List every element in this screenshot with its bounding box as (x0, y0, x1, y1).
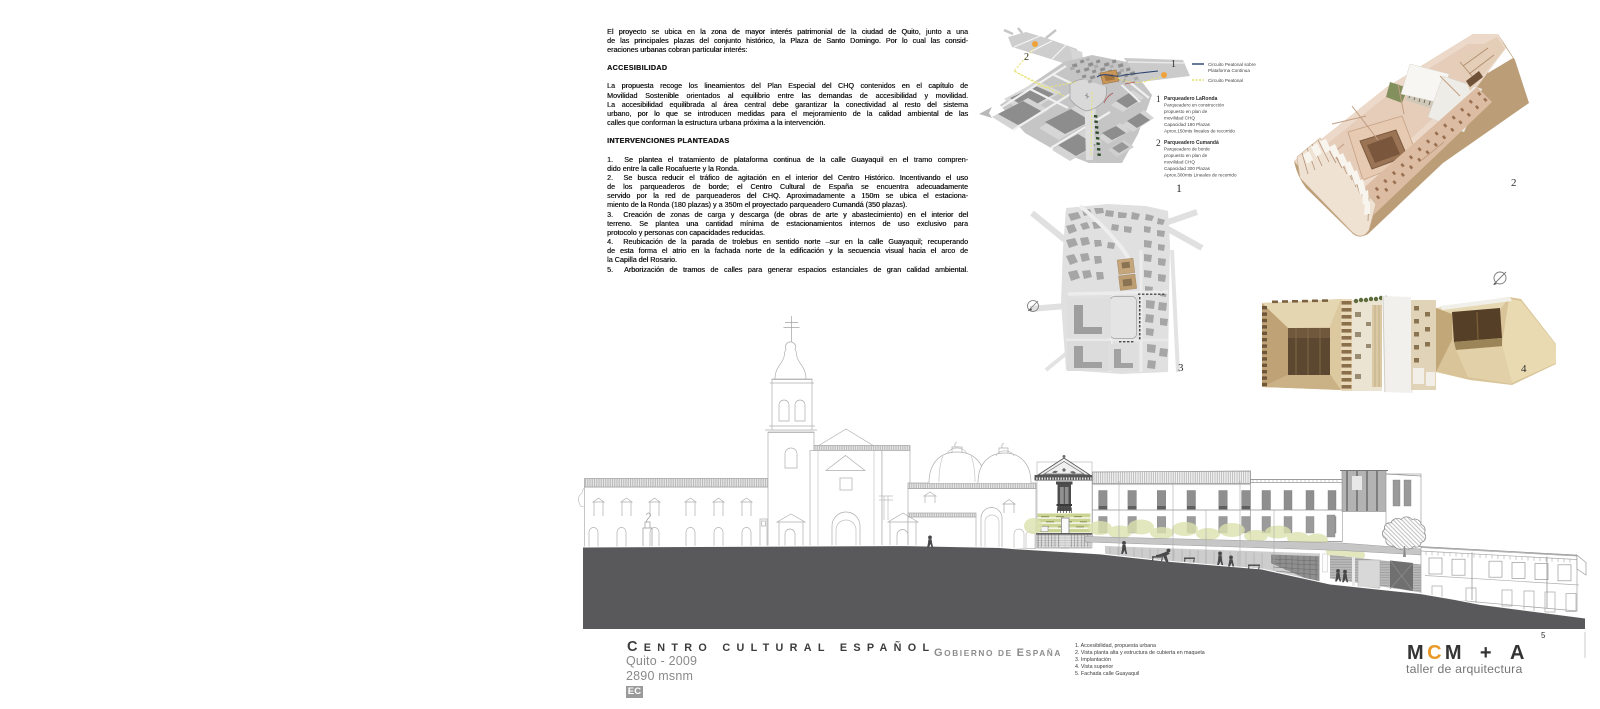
svg-text:2: 2 (1511, 177, 1517, 189)
svg-text:Capacidad 300 Plazas: Capacidad 300 Plazas (1164, 166, 1211, 171)
svg-text:4: 4 (1521, 363, 1527, 375)
svg-text:propuesto en plan de: propuesto en plan de (1164, 109, 1208, 114)
svg-text:1: 1 (1156, 95, 1161, 105)
svg-text:propuesto en plan de: propuesto en plan de (1164, 153, 1208, 158)
svg-text:1: 1 (1176, 181, 1182, 195)
svg-text:Parqueadero Cumandá: Parqueadero Cumandá (1164, 140, 1219, 146)
svg-text:2: 2 (1024, 52, 1029, 63)
svg-text:Parqueadero en construcción: Parqueadero en construcción (1164, 103, 1224, 108)
svg-text:Aprox.300mts Lineales de recor: Aprox.300mts Lineales de recorrido (1164, 173, 1237, 178)
svg-text:2: 2 (1156, 139, 1161, 149)
svg-text:Circuito Peatonal: Circuito Peatonal (1208, 78, 1243, 83)
svg-text:movilidad CHQ: movilidad CHQ (1164, 160, 1195, 165)
svg-text:Capacidad 180 Plazas: Capacidad 180 Plazas (1164, 122, 1211, 127)
svg-text:1: 1 (1171, 59, 1176, 70)
svg-text:Parqueadero de borde: Parqueadero de borde (1164, 147, 1210, 152)
svg-text:Circuito Peatonal sobre: Circuito Peatonal sobre (1208, 62, 1256, 67)
svg-text:Aprox.150mts lineales de recor: Aprox.150mts lineales de recorrido (1164, 129, 1235, 134)
svg-text:Plataforma Continua: Plataforma Continua (1208, 68, 1250, 73)
svg-text:movilidad CHQ: movilidad CHQ (1164, 116, 1195, 121)
svg-text:Parqueadero LaRonda: Parqueadero LaRonda (1164, 96, 1218, 102)
svg-text:3: 3 (1178, 362, 1184, 374)
